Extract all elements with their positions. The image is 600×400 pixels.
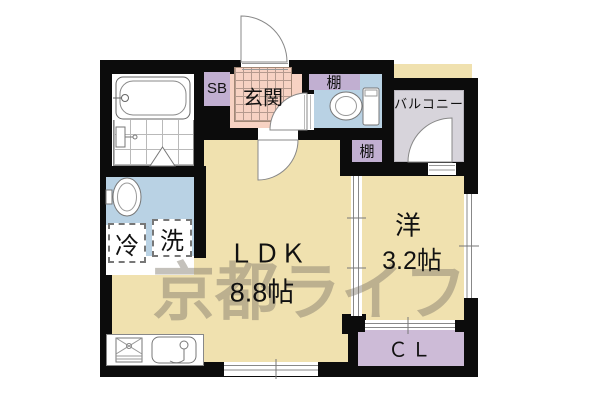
ldk-label: ＬＤＫ: [228, 234, 306, 271]
wall-under-shoebox: [196, 106, 230, 140]
washing-machine-space: 洗: [152, 219, 192, 257]
wall-bath-bottom: [100, 166, 206, 177]
wall-shelf-left: [340, 140, 352, 176]
wall-hall-ldk-a: [229, 128, 258, 140]
front-door-swing-icon: [241, 16, 287, 62]
closet-label: ＣＬ: [388, 334, 434, 363]
western-room-label: 洋: [395, 206, 421, 243]
entrance-label: 玄関: [243, 82, 283, 111]
kitchen-counter: [106, 334, 204, 366]
floorplan: 冷 洗: [0, 0, 600, 400]
balcony-door-opening: [428, 163, 456, 175]
shelf-upper-label: 棚: [326, 72, 341, 93]
wall-washroom-right: [194, 166, 206, 258]
wall-toilet-bottom: [302, 128, 394, 140]
shelf-lower-label: 棚: [359, 141, 374, 162]
refrigerator-space: 冷: [108, 223, 146, 263]
ldk-size-label: 8.8帖: [230, 271, 295, 310]
wall-balcony-left: [382, 60, 394, 176]
window-south: [224, 362, 318, 376]
washroom-floor: [106, 177, 194, 225]
hall-ldk-door-opening: [258, 128, 298, 140]
wall-closet-left: [348, 328, 358, 377]
wall-western-top: [340, 162, 478, 176]
western-room-size-label: 3.2帖: [382, 241, 442, 277]
refrigerator-label: 冷: [115, 226, 139, 261]
bathroom-tiles: [113, 120, 194, 166]
shoe-box-label: SB: [204, 72, 230, 106]
washing-machine-label: 洗: [160, 221, 184, 256]
toilet-door-opening: [302, 94, 314, 130]
wall-balcony-top: [382, 78, 478, 90]
balcony-label: バルコニー: [394, 94, 464, 113]
